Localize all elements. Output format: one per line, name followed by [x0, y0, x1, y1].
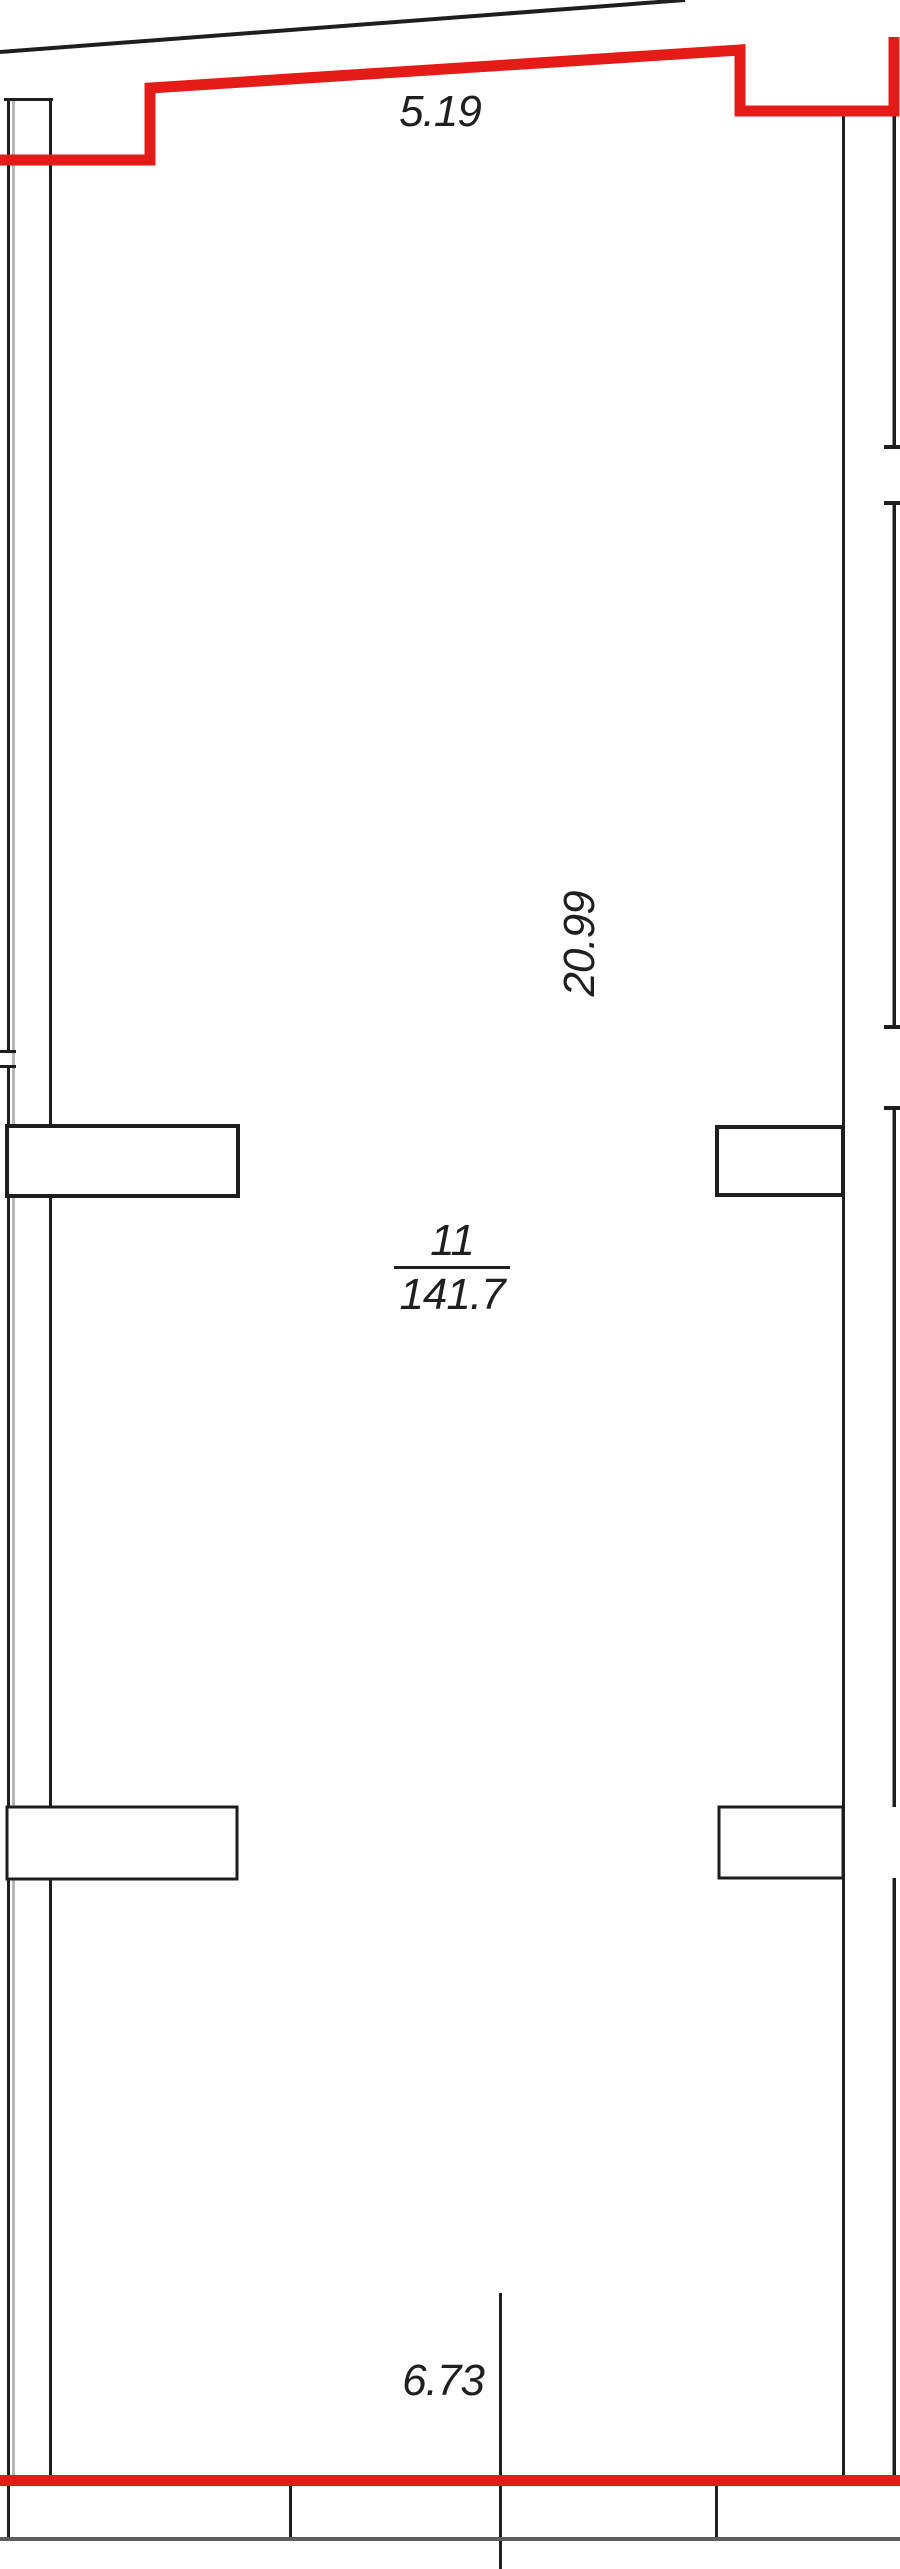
pier-right-lower: [719, 1807, 843, 1878]
dimension-top-width: 5.19: [340, 90, 540, 134]
pier-right-upper: [717, 1127, 843, 1195]
room-number-label: 11: [430, 1219, 474, 1263]
room-area-label: 141.7: [399, 1273, 504, 1317]
dimension-bottom-width: 6.73: [343, 2359, 543, 2403]
room-label-divider: [394, 1266, 510, 1269]
pier-left-upper: [7, 1126, 238, 1196]
dimension-side-height: 20.99: [558, 891, 602, 996]
pier-left-lower: [7, 1807, 237, 1879]
adjacent-unit-boundary-line: [0, 0, 685, 52]
floor-plan: 5.19 20.99 11 141.7 6.73: [0, 0, 900, 2569]
room-label: 11 141.7: [372, 1219, 532, 1317]
